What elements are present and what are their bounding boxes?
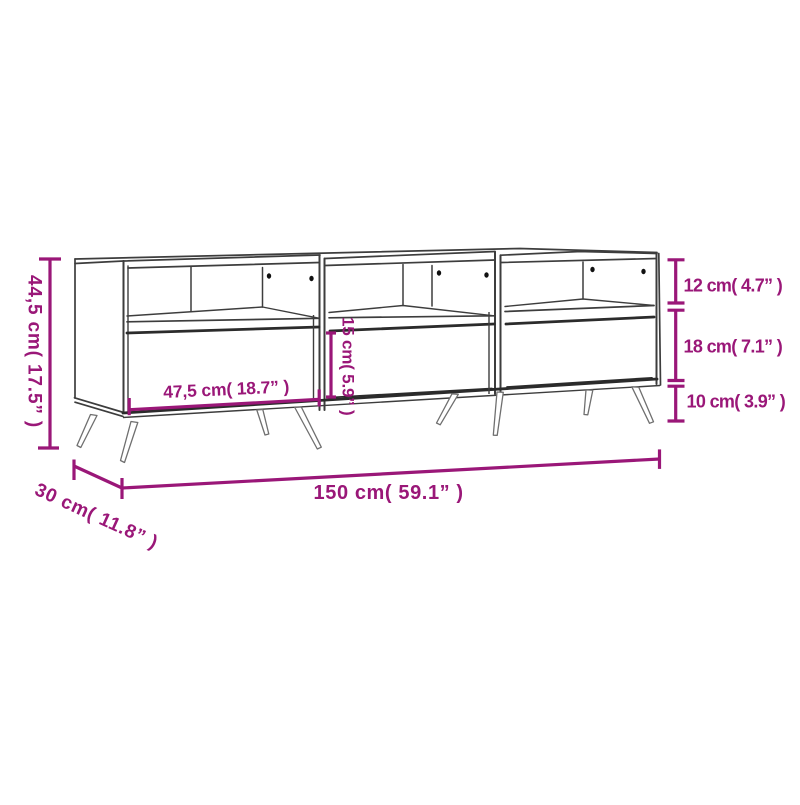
svg-text:150 cm( 59.1” ): 150 cm( 59.1” ) bbox=[314, 482, 464, 504]
svg-text:15 cm( 5.9” ): 15 cm( 5.9” ) bbox=[339, 317, 358, 416]
svg-text:30 cm( 11.8” ): 30 cm( 11.8” ) bbox=[31, 479, 161, 553]
svg-text:12 cm( 4.7” ): 12 cm( 4.7” ) bbox=[684, 276, 783, 296]
svg-text:47,5 cm( 18.7” ): 47,5 cm( 18.7” ) bbox=[163, 376, 290, 402]
svg-text:44,5 cm( 17.5” ): 44,5 cm( 17.5” ) bbox=[24, 275, 45, 428]
svg-text:10 cm( 3.9” ): 10 cm( 3.9” ) bbox=[687, 392, 786, 412]
svg-text:18 cm( 7.1” ): 18 cm( 7.1” ) bbox=[684, 336, 783, 356]
